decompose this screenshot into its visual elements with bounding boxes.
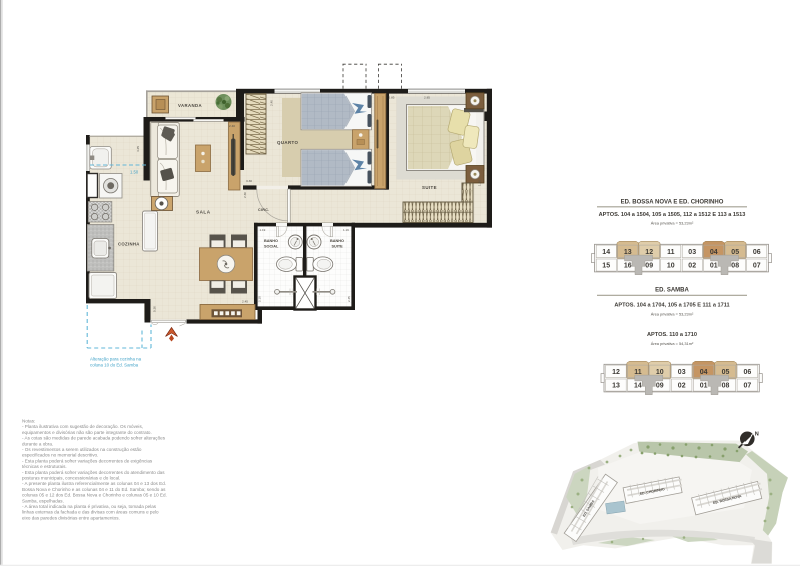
svg-text:Área privativa = 53,23m²: Área privativa = 53,23m² — [651, 312, 694, 317]
svg-text:04: 04 — [710, 249, 718, 256]
svg-text:ED. BOSSA NOVA E ED. CHORINHO: ED. BOSSA NOVA E ED. CHORINHO — [621, 200, 724, 206]
svg-text:CIRC.: CIRC. — [258, 208, 270, 212]
svg-text:11: 11 — [634, 369, 642, 376]
svg-text:1.40: 1.40 — [478, 180, 482, 186]
svg-text:- Esta planta poderá sofrer va: - Esta planta poderá sofrer variações de… — [22, 470, 165, 475]
svg-text:2.85: 2.85 — [424, 96, 430, 100]
svg-text:N: N — [755, 432, 759, 438]
svg-text:01: 01 — [700, 383, 708, 390]
svg-text:5.30: 5.30 — [153, 306, 157, 312]
svg-text:APTOS. 104 a 1704, 105 a 1705: APTOS. 104 a 1704, 105 a 1705 E 111 a 17… — [614, 303, 729, 309]
svg-text:16: 16 — [624, 263, 632, 270]
svg-text:durante a obra.: durante a obra. — [22, 441, 53, 446]
svg-text:Samba, espelhadas.: Samba, espelhadas. — [22, 498, 64, 503]
svg-text:1.19: 1.19 — [260, 228, 266, 232]
svg-text:13: 13 — [624, 249, 632, 256]
svg-text:- A presente planta ilustra re: - A presente planta ilustra referencialm… — [22, 481, 166, 486]
svg-text:- Esta planta poderá sofrer va: - Esta planta poderá sofrer variações de… — [22, 458, 153, 463]
svg-text:09: 09 — [656, 383, 664, 390]
svg-text:BANHO: BANHO — [330, 239, 344, 243]
svg-text:08: 08 — [722, 383, 730, 390]
svg-text:SALA: SALA — [196, 210, 211, 215]
svg-text:06: 06 — [753, 249, 761, 256]
svg-text:03: 03 — [678, 369, 686, 376]
svg-text:01: 01 — [710, 263, 718, 270]
svg-text:05: 05 — [731, 249, 739, 256]
svg-text:3.30: 3.30 — [246, 179, 252, 183]
svg-text:- Os revestimentos a serem uti: - Os revestimentos a serem utilizados na… — [22, 447, 142, 452]
svg-text:Área privativa = 53,23m²: Área privativa = 53,23m² — [651, 221, 694, 226]
svg-text:1.19: 1.19 — [343, 228, 349, 232]
svg-text:14: 14 — [602, 249, 610, 256]
svg-text:1.50: 1.50 — [130, 170, 139, 175]
svg-text:10: 10 — [656, 369, 664, 376]
svg-text:coluna 10 do Ed. Samba: coluna 10 do Ed. Samba — [90, 363, 139, 368]
svg-text:02: 02 — [688, 263, 696, 270]
svg-text:- A área total indicada na pla: - A área total indicada na planta é priv… — [22, 504, 157, 509]
svg-text:colunas 05 e 12 dos Ed. Bossa: colunas 05 e 12 dos Ed. Bossa Nova e Cho… — [22, 493, 167, 498]
svg-text:eixo das paredes divisórias en: eixo das paredes divisórias entre aparta… — [22, 515, 120, 520]
svg-text:APTOS. 110 a 1710: APTOS. 110 a 1710 — [647, 332, 697, 338]
svg-text:2.30: 2.30 — [243, 192, 247, 198]
svg-text:08: 08 — [731, 263, 739, 270]
svg-text:12: 12 — [612, 369, 620, 376]
svg-text:Alteração para cozinha na: Alteração para cozinha na — [90, 357, 142, 362]
svg-text:2.85: 2.85 — [389, 96, 395, 100]
svg-text:técnicas e estruturais.: técnicas e estruturais. — [22, 464, 67, 469]
svg-text:2.45: 2.45 — [347, 296, 351, 302]
svg-text:05: 05 — [722, 369, 730, 376]
svg-text:04: 04 — [700, 369, 708, 376]
svg-text:09: 09 — [645, 263, 653, 270]
svg-text:APTOS. 104 a 1504, 105 a 1505,: APTOS. 104 a 1504, 105 a 1505, 112 a 151… — [599, 212, 746, 218]
svg-text:ED. SAMBA: ED. SAMBA — [655, 288, 689, 294]
svg-text:4.25: 4.25 — [136, 146, 140, 152]
svg-text:2.10: 2.10 — [258, 296, 262, 302]
svg-text:2.40: 2.40 — [270, 100, 274, 106]
svg-text:03: 03 — [688, 249, 696, 256]
svg-text:11: 11 — [667, 249, 675, 256]
svg-text:COZINHA: COZINHA — [118, 242, 140, 247]
svg-text:- Planta ilustrativa com suges: - Planta ilustrativa com sugestão de dec… — [22, 424, 143, 429]
svg-text:15: 15 — [602, 263, 610, 270]
svg-text:- As cotas são medidas de pare: - As cotas são medidas de parede acabada… — [22, 436, 166, 441]
svg-text:14: 14 — [634, 383, 642, 390]
svg-text:posturas municipais, concessio: posturas municipais, concessionárias e d… — [22, 476, 120, 481]
svg-text:BANHO: BANHO — [264, 239, 278, 243]
svg-text:07: 07 — [753, 263, 761, 270]
svg-text:06: 06 — [744, 369, 752, 376]
svg-text:Notas:: Notas: — [22, 419, 35, 424]
svg-text:VARANDA: VARANDA — [178, 103, 202, 108]
svg-text:12: 12 — [645, 249, 653, 256]
svg-text:2.45: 2.45 — [242, 300, 248, 304]
svg-text:13: 13 — [612, 383, 620, 390]
svg-text:SOCIAL: SOCIAL — [264, 245, 279, 249]
svg-text:Bossa Nova e Chorinho e as col: Bossa Nova e Chorinho e as colunas 04 e … — [22, 487, 166, 492]
svg-text:equipamentos e divisórias não: equipamentos e divisórias não são parte … — [22, 430, 152, 435]
svg-text:linhas externas da fachada e d: linhas externas da fachada e das divisas… — [22, 510, 159, 515]
svg-text:2.40: 2.40 — [229, 124, 235, 128]
svg-text:SUITE: SUITE — [422, 185, 437, 190]
svg-text:Área privativa = 54,31m²: Área privativa = 54,31m² — [651, 341, 694, 346]
svg-text:07: 07 — [744, 383, 752, 390]
svg-text:10: 10 — [667, 263, 675, 270]
svg-text:QUARTO: QUARTO — [277, 140, 299, 145]
svg-text:SUITE: SUITE — [332, 245, 344, 249]
svg-text:especificados no memorial desc: especificados no memorial descritivo. — [22, 453, 98, 458]
svg-text:02: 02 — [678, 383, 686, 390]
